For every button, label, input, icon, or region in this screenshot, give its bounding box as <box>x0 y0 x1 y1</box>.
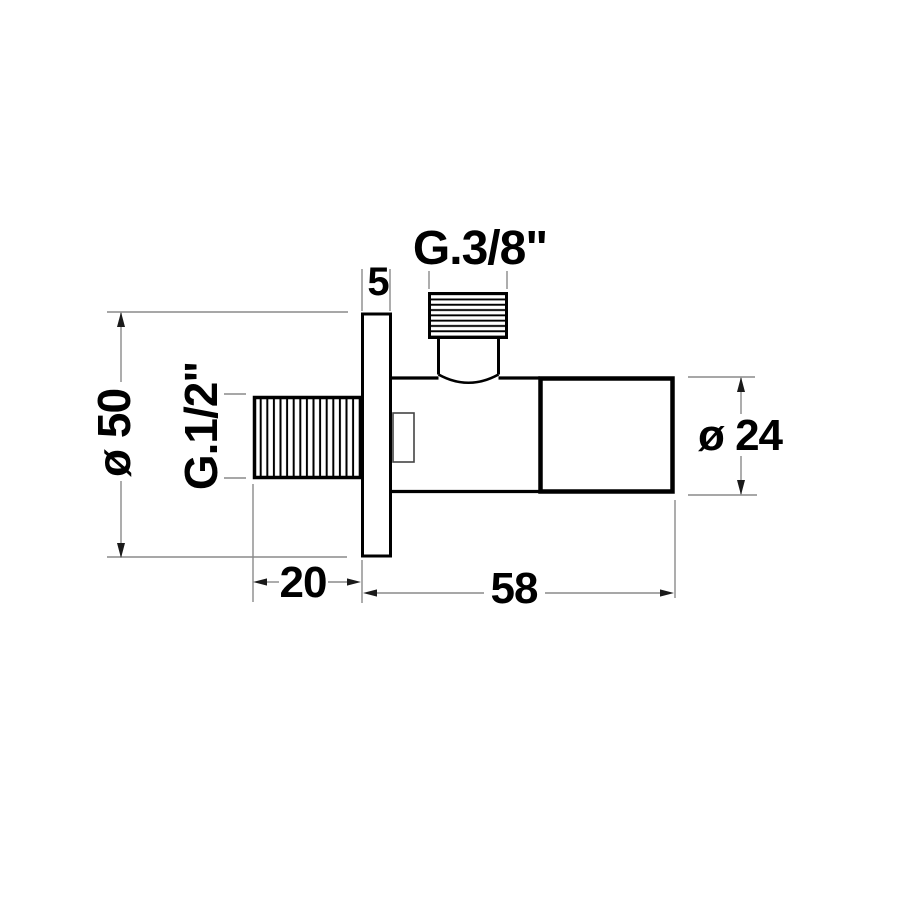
label-top-thread: G.3/8" <box>413 225 547 273</box>
label-side-thread: G.1/2" <box>178 362 224 490</box>
label-plate-thickness: 5 <box>367 262 388 302</box>
top-thread-g38 <box>430 294 507 338</box>
label-body-diameter: ø 24 <box>698 414 782 458</box>
neck-arc <box>439 375 499 383</box>
valve-body-right <box>541 379 673 492</box>
technical-drawing-canvas: G.3/8" 5 ø 50 G.1/2" ø 24 20 58 <box>0 0 900 900</box>
body-square-detail <box>393 413 414 462</box>
label-body-length: 58 <box>491 567 538 611</box>
label-plate-diameter: ø 50 <box>91 389 137 477</box>
side-thread-g12 <box>255 398 362 478</box>
label-thread-length: 20 <box>280 561 327 605</box>
wall-plate <box>363 314 391 556</box>
valve-neck <box>439 338 499 375</box>
